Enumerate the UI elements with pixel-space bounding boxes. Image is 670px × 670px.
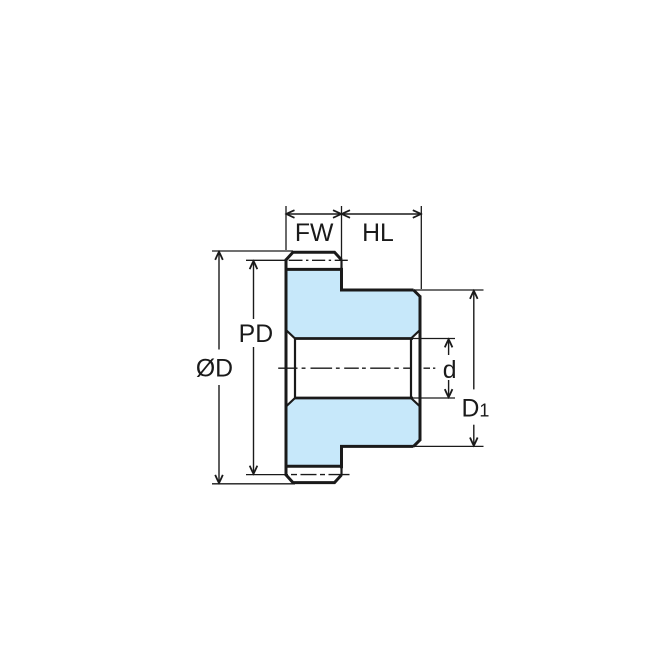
svg-text:ØD: ØD: [196, 355, 233, 382]
svg-text:HL: HL: [362, 220, 394, 247]
svg-text:D1: D1: [462, 395, 490, 422]
svg-text:PD: PD: [239, 321, 273, 348]
svg-text:d: d: [443, 357, 457, 384]
svg-text:FW: FW: [295, 220, 334, 247]
